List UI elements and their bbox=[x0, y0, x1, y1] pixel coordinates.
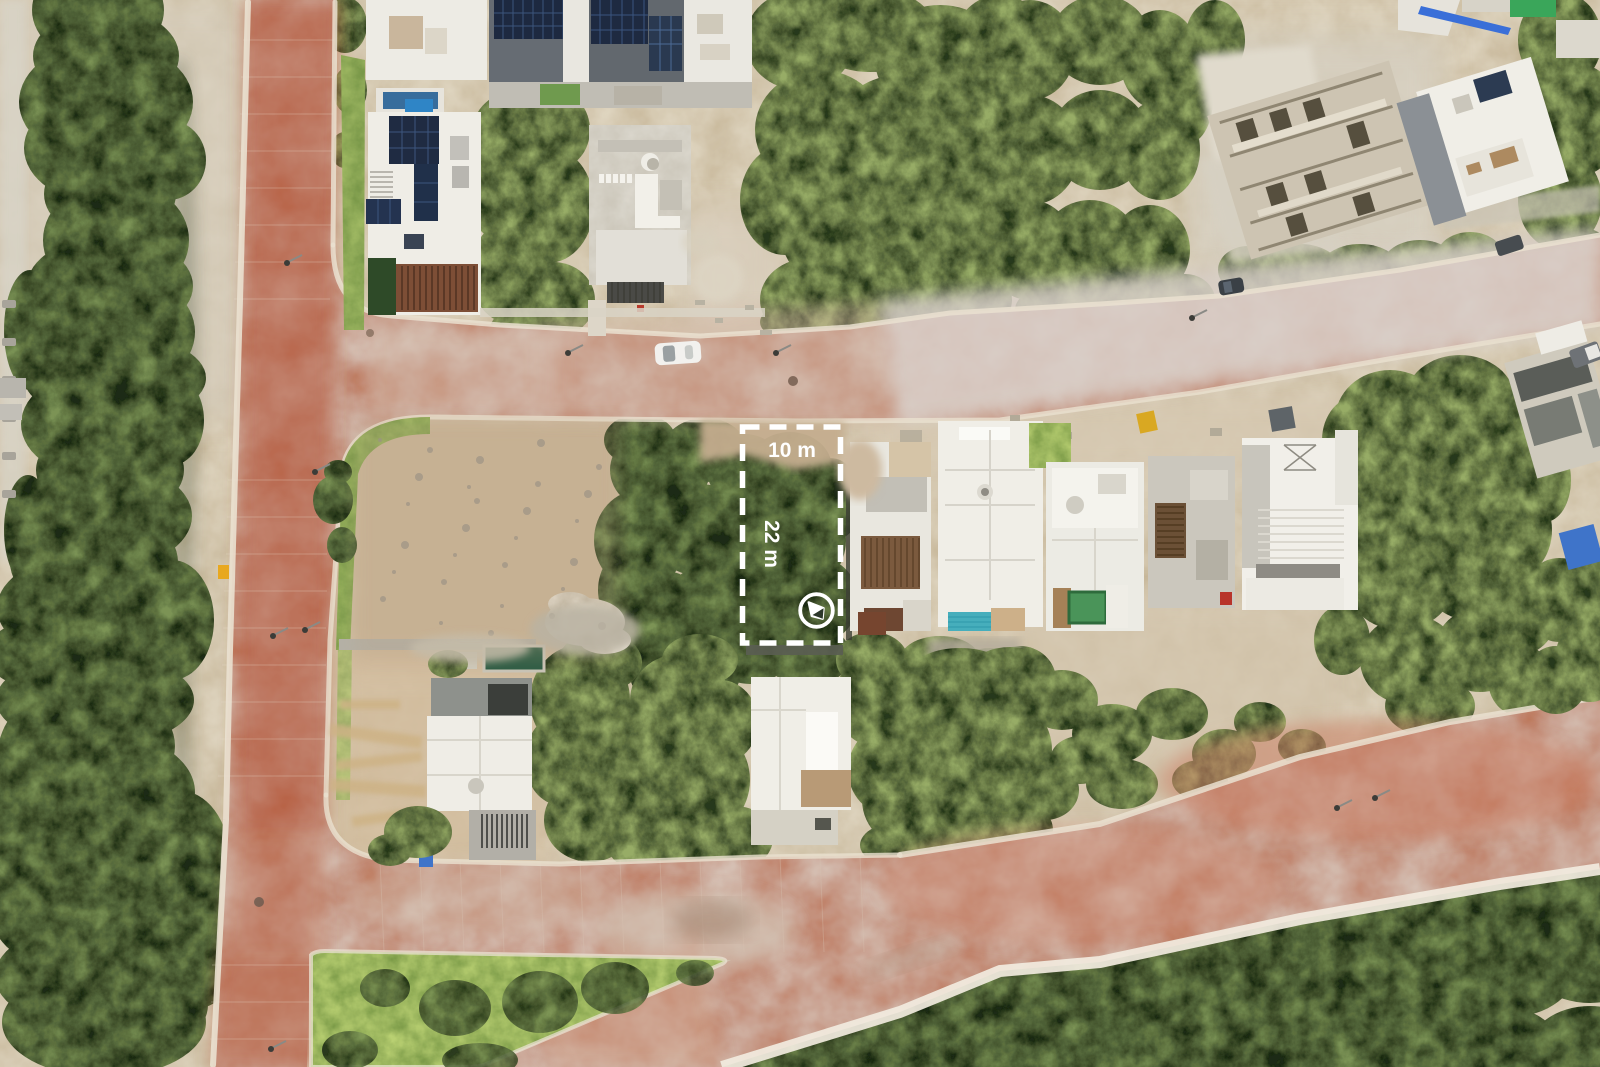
svg-text:22 m: 22 m bbox=[760, 520, 783, 568]
svg-text:10 m: 10 m bbox=[768, 439, 816, 462]
